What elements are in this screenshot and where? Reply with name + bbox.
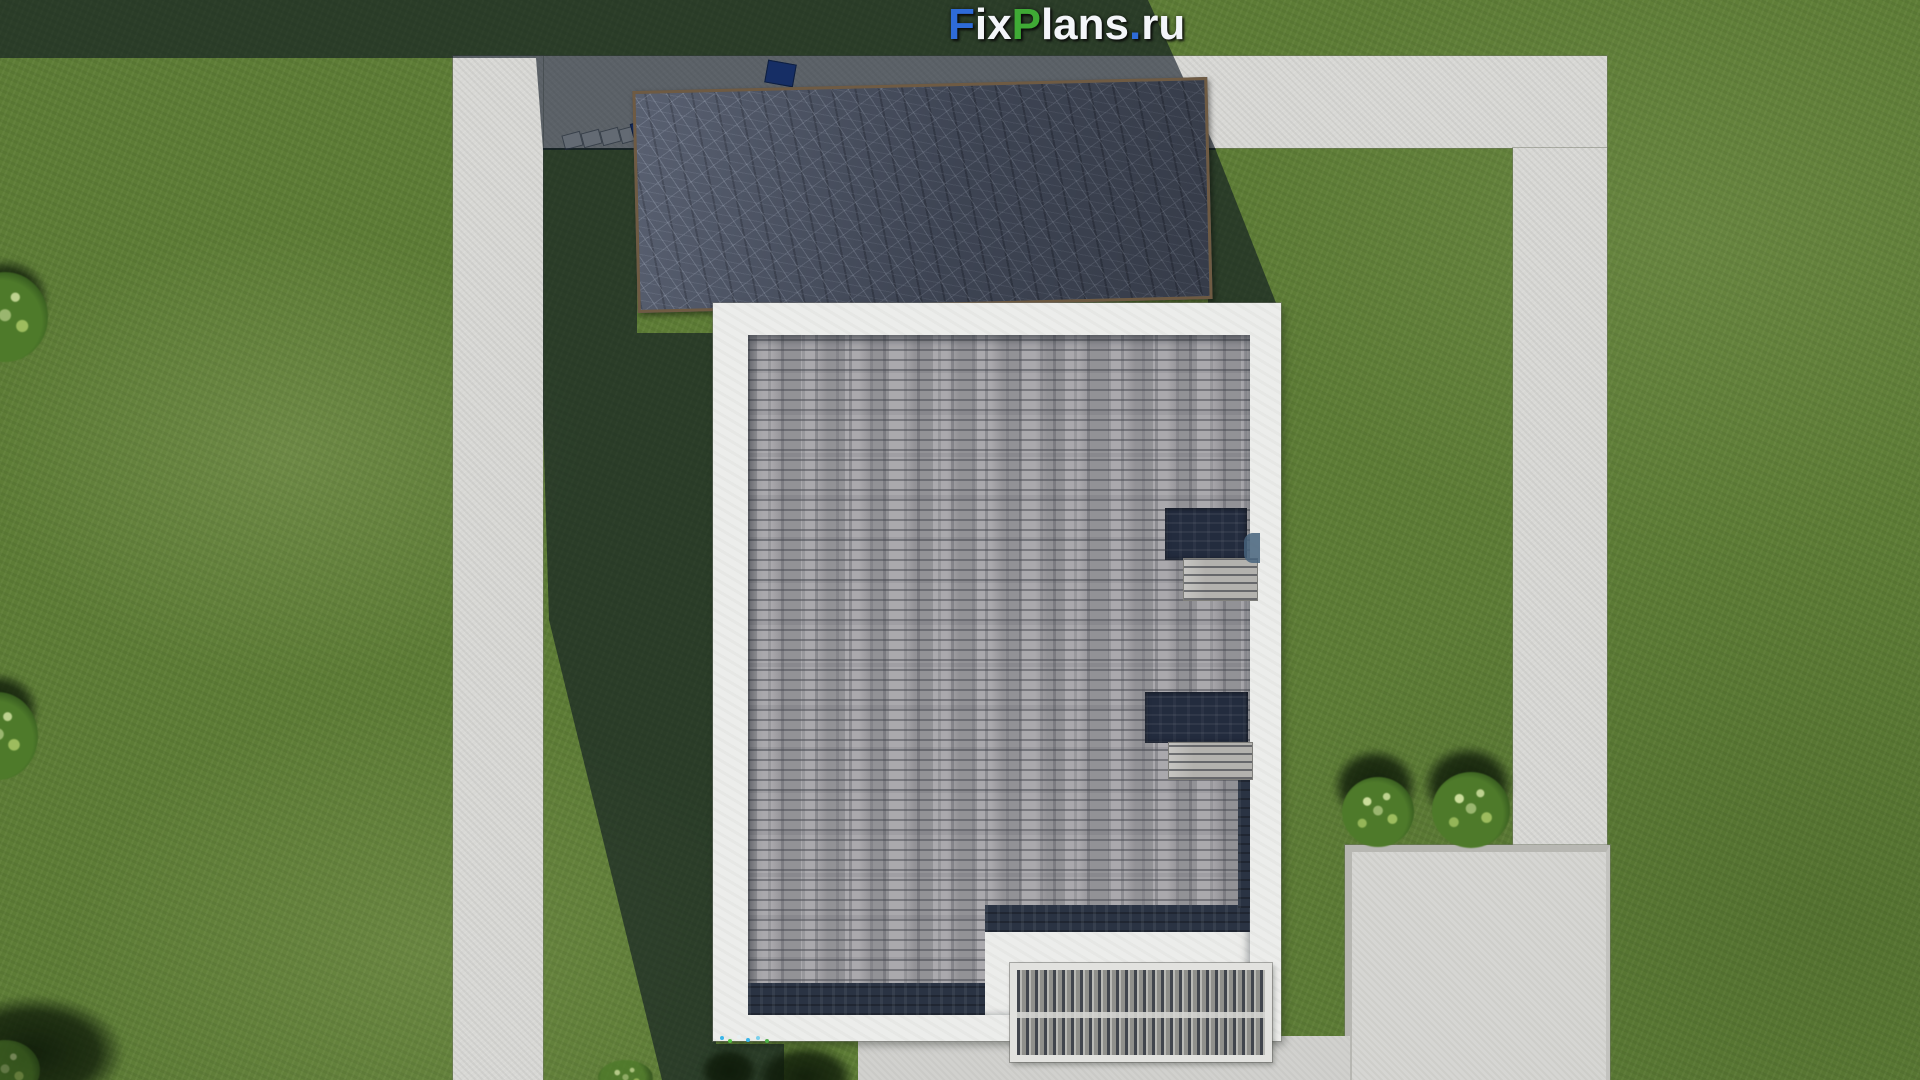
walkway-right xyxy=(1513,148,1607,845)
roof-terrace-inset-1 xyxy=(1165,508,1247,560)
watermark-segment: . xyxy=(1129,0,1141,49)
watermark-segment: P xyxy=(1012,0,1041,49)
membrane-band-lower xyxy=(748,983,985,1015)
membrane-band-upper xyxy=(985,905,1250,932)
garage-slate-roof xyxy=(632,77,1212,313)
bush xyxy=(1342,777,1414,847)
roof-terrace-inset-2 xyxy=(1145,692,1248,743)
site-aerial-render: FixPlans.ru xyxy=(0,0,1920,1080)
watermark-segment: ix xyxy=(975,0,1012,49)
parapet-vent xyxy=(1244,533,1260,563)
concrete-pad xyxy=(1345,845,1610,1080)
walkway-left xyxy=(453,56,543,1080)
main-roof xyxy=(713,303,1281,1041)
rooftop-unit-2 xyxy=(1168,742,1253,780)
membrane-strip-right xyxy=(1238,780,1250,908)
bush xyxy=(1432,772,1510,848)
bush-bottom-edge xyxy=(598,1060,653,1080)
flower-cluster xyxy=(718,1032,774,1046)
rooftop-unit-1 xyxy=(1183,558,1258,601)
watermark-segment: ru xyxy=(1141,0,1185,49)
watermark-segment: F xyxy=(948,0,975,49)
watermark-segment: lans xyxy=(1041,0,1129,49)
pergola-grate xyxy=(1010,963,1272,1062)
pergola-rail xyxy=(1017,1012,1265,1018)
fixplans-watermark: FixPlans.ru xyxy=(948,2,1185,48)
